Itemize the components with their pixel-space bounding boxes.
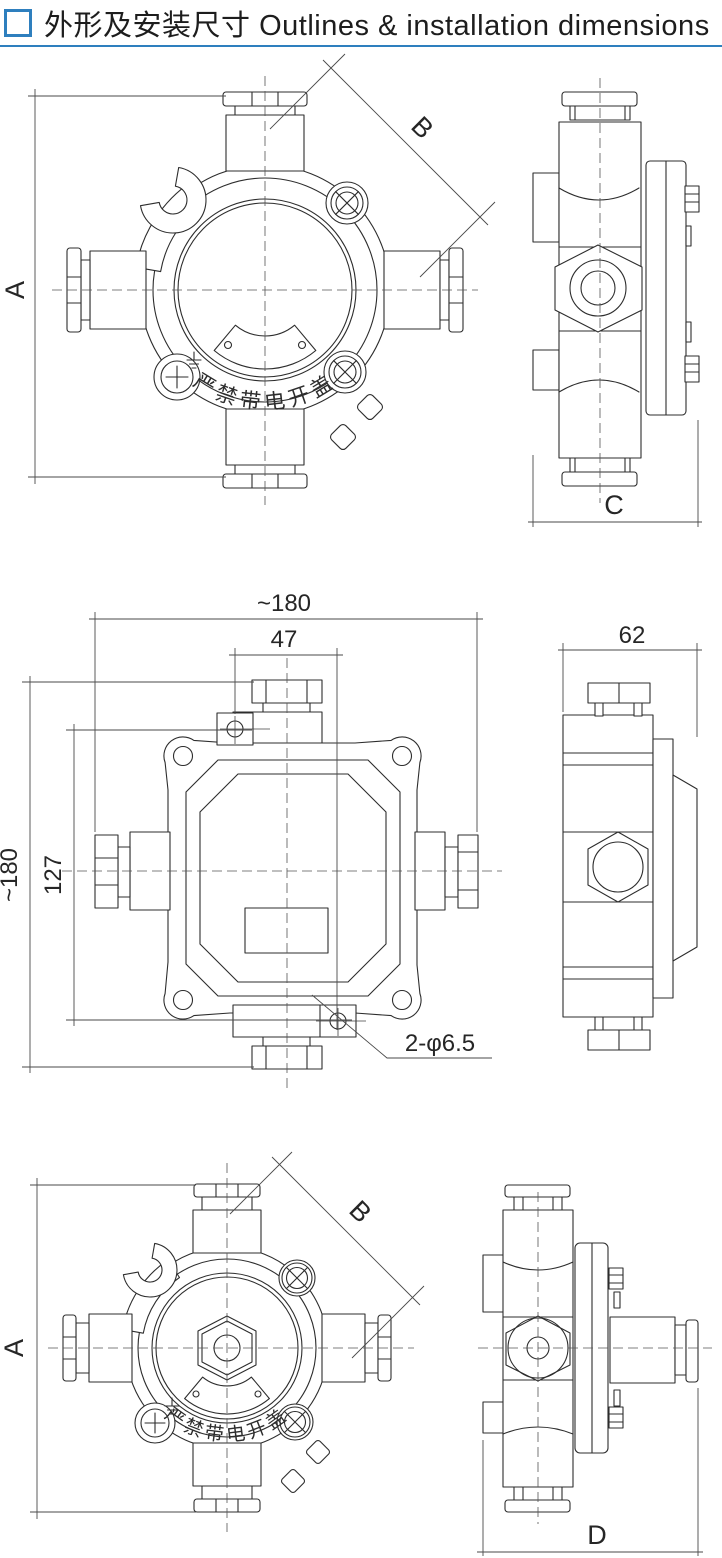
cable-gland-bottom xyxy=(233,1005,366,1069)
drawing-canvas: 严禁带电开盖 A B xyxy=(0,0,722,1558)
dim-label-a: A xyxy=(0,1339,29,1357)
side-view-round-box-bottom: D xyxy=(477,1185,712,1556)
dim-label-d: D xyxy=(587,1520,607,1550)
dim-label-width-180: ~180 xyxy=(257,590,311,617)
mounting-tab xyxy=(483,1255,504,1312)
side-view-round-box-top: C xyxy=(528,78,702,527)
cable-gland-bottom xyxy=(588,1017,650,1050)
dim-label-a: A xyxy=(0,281,30,299)
cable-gland-bottom xyxy=(562,458,637,486)
cover-bolt xyxy=(685,356,699,382)
box-body xyxy=(164,737,421,1019)
cover-side xyxy=(646,161,699,415)
front-view-round-box-bottom: 严禁带电开盖 A B xyxy=(0,1152,424,1532)
cable-gland-bottom xyxy=(223,409,307,488)
dim-label-127: 127 xyxy=(40,855,67,895)
cover-screw-icon xyxy=(282,1263,312,1293)
dim-label-47: 47 xyxy=(271,626,298,653)
hinge-lug xyxy=(329,393,384,451)
cover-screw-icon xyxy=(331,187,363,219)
page: 外形及安装尺寸 Outlines & installation dimensio… xyxy=(0,0,722,1558)
dim-label-height-180: ~180 xyxy=(0,848,23,902)
dim-label-c: C xyxy=(604,490,624,520)
cover-bolt xyxy=(609,1268,623,1289)
mounting-tab xyxy=(483,1402,504,1433)
cover-bolt xyxy=(609,1407,623,1428)
ground-screw-icon xyxy=(161,361,193,393)
cable-gland-top xyxy=(562,92,637,120)
cable-gland-top xyxy=(505,1185,570,1210)
cable-gland-bottom xyxy=(505,1487,570,1512)
cover-side xyxy=(653,739,697,998)
dim-label-b: B xyxy=(405,111,439,145)
front-view-square-box: ~180 47 127 ~180 2-φ6.5 xyxy=(0,590,502,1092)
dim-label-62: 62 xyxy=(619,622,646,649)
side-view-square-box: 62 xyxy=(558,622,702,1050)
front-view-round-box-top: 严禁带电开盖 A B xyxy=(0,54,495,505)
cover-bolt xyxy=(685,186,699,212)
cable-gland-top xyxy=(217,680,322,745)
mounting-tab xyxy=(533,173,559,242)
dim-label-holes: 2-φ6.5 xyxy=(405,1030,475,1057)
mounting-tab xyxy=(533,350,559,390)
cable-gland-right xyxy=(610,1317,698,1383)
dim-label-b: B xyxy=(343,1195,377,1229)
hinge-lug xyxy=(280,1439,330,1493)
cable-gland-top xyxy=(588,683,650,716)
